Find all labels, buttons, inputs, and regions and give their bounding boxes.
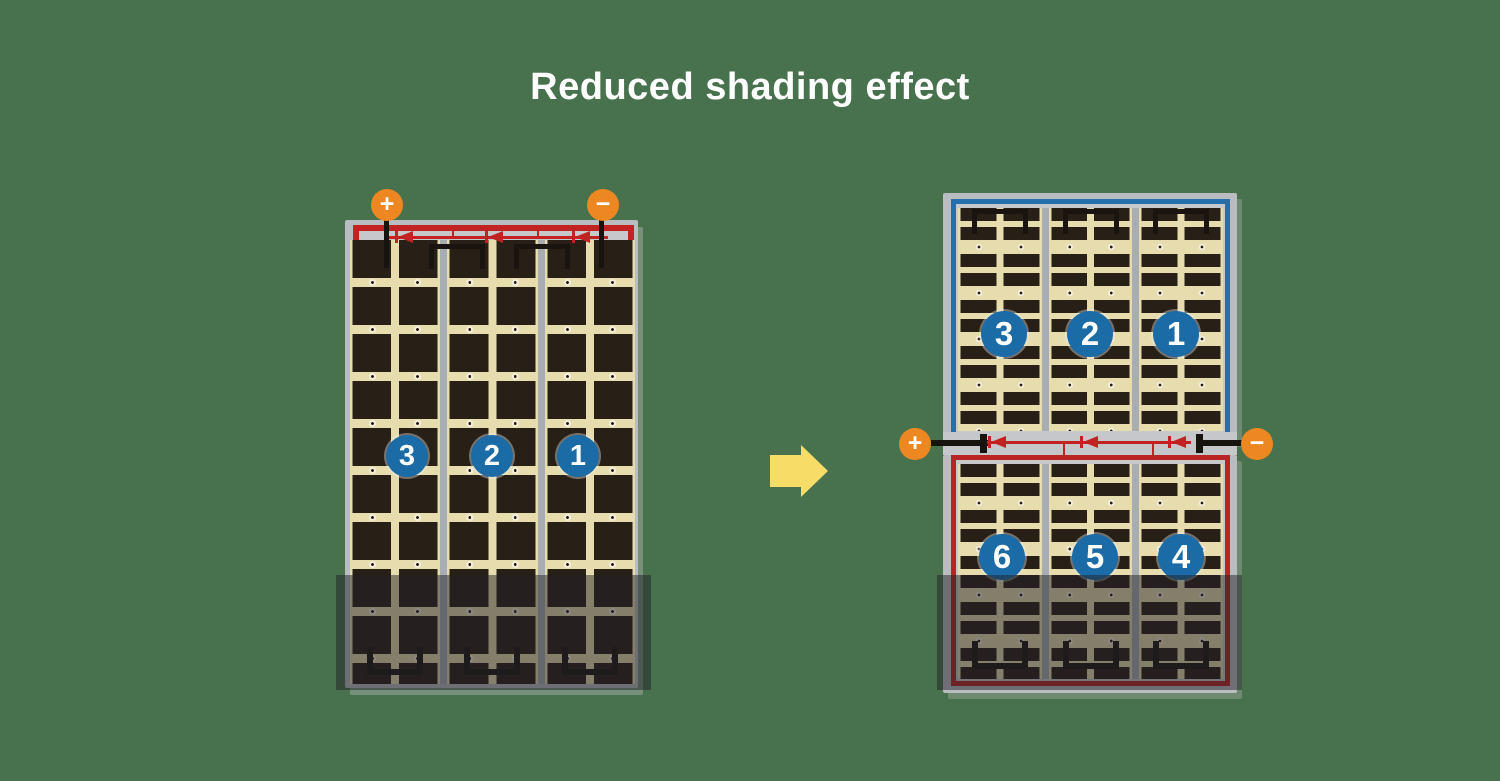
- wire-tap: [452, 231, 454, 237]
- plus-terminal: +: [899, 428, 931, 460]
- diagram-canvas: Reduced shading effect + − 3: [0, 0, 1500, 781]
- bypass-diode-icon: [572, 231, 590, 243]
- string-badge: 6: [979, 534, 1025, 580]
- string-badge: 3: [386, 435, 428, 477]
- wire-tap: [1063, 444, 1065, 455]
- top-bus-connector: [429, 244, 485, 269]
- bus-bar: [1196, 434, 1203, 453]
- top-bus-connector: [1153, 209, 1209, 234]
- minus-terminal: −: [587, 189, 619, 221]
- bypass-diode-icon: [1168, 436, 1186, 448]
- diagram-title: Reduced shading effect: [0, 66, 1500, 109]
- wire-tap: [537, 231, 539, 237]
- bypass-diode-icon: [988, 436, 1006, 448]
- negative-lead-wire: [1196, 440, 1244, 446]
- bypass-diode-icon: [485, 231, 503, 243]
- string-badge: 2: [1067, 311, 1113, 357]
- string-badge: 3: [981, 311, 1027, 357]
- transition-arrow-icon: [770, 445, 828, 497]
- bypass-diode-icon: [395, 231, 413, 243]
- string-badge: 1: [1153, 311, 1199, 357]
- bypass-diode-icon: [1080, 436, 1098, 448]
- shade-overlay: [336, 575, 651, 690]
- plus-terminal: +: [371, 189, 403, 221]
- top-bus-connector: [1063, 209, 1119, 234]
- minus-terminal: −: [1241, 428, 1273, 460]
- wire-tap: [1152, 444, 1154, 455]
- shade-overlay: [937, 575, 1242, 690]
- string-badge: 1: [557, 435, 599, 477]
- top-bus-connector: [972, 209, 1028, 234]
- top-bus-connector: [514, 244, 570, 269]
- center-junction-bus: [943, 432, 1237, 455]
- string-badge: 2: [471, 435, 513, 477]
- string-badge: 5: [1072, 534, 1118, 580]
- string-badge: 4: [1158, 534, 1204, 580]
- bus-bar: [980, 434, 987, 453]
